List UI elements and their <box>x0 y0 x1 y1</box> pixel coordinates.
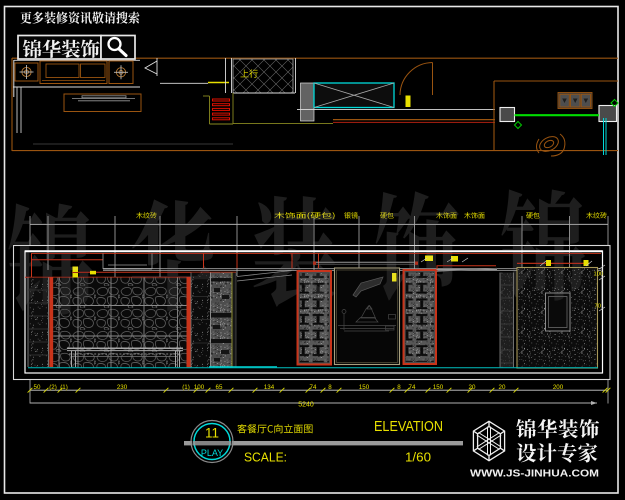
svg-text:200: 200 <box>553 384 564 391</box>
svg-text:PLAY: PLAY <box>201 448 223 458</box>
svg-text:(2): (2) <box>49 384 57 391</box>
svg-text:(1): (1) <box>182 384 190 391</box>
svg-text:20: 20 <box>499 384 506 391</box>
svg-text:8: 8 <box>397 384 401 391</box>
svg-text:WWW.JS-JINHUA.COM: WWW.JS-JINHUA.COM <box>470 469 599 480</box>
svg-text:65: 65 <box>216 384 223 391</box>
svg-text:ELEVATION: ELEVATION <box>374 418 443 435</box>
svg-text:20: 20 <box>469 384 476 391</box>
svg-text:134: 134 <box>264 384 275 391</box>
svg-text:(1): (1) <box>60 384 68 391</box>
svg-text:SCALE:: SCALE: <box>244 450 287 465</box>
svg-text:74: 74 <box>310 384 317 391</box>
svg-text:50: 50 <box>34 384 41 391</box>
svg-text:11: 11 <box>205 426 219 441</box>
svg-text:5240: 5240 <box>298 402 314 409</box>
svg-text:74: 74 <box>409 384 416 391</box>
svg-text:70: 70 <box>595 304 601 310</box>
svg-text:150: 150 <box>433 384 444 391</box>
svg-text:150: 150 <box>359 384 370 391</box>
svg-text:230: 230 <box>117 384 128 391</box>
svg-text:1/60: 1/60 <box>405 450 431 465</box>
svg-text:8: 8 <box>328 384 332 391</box>
svg-text:100: 100 <box>194 384 205 391</box>
